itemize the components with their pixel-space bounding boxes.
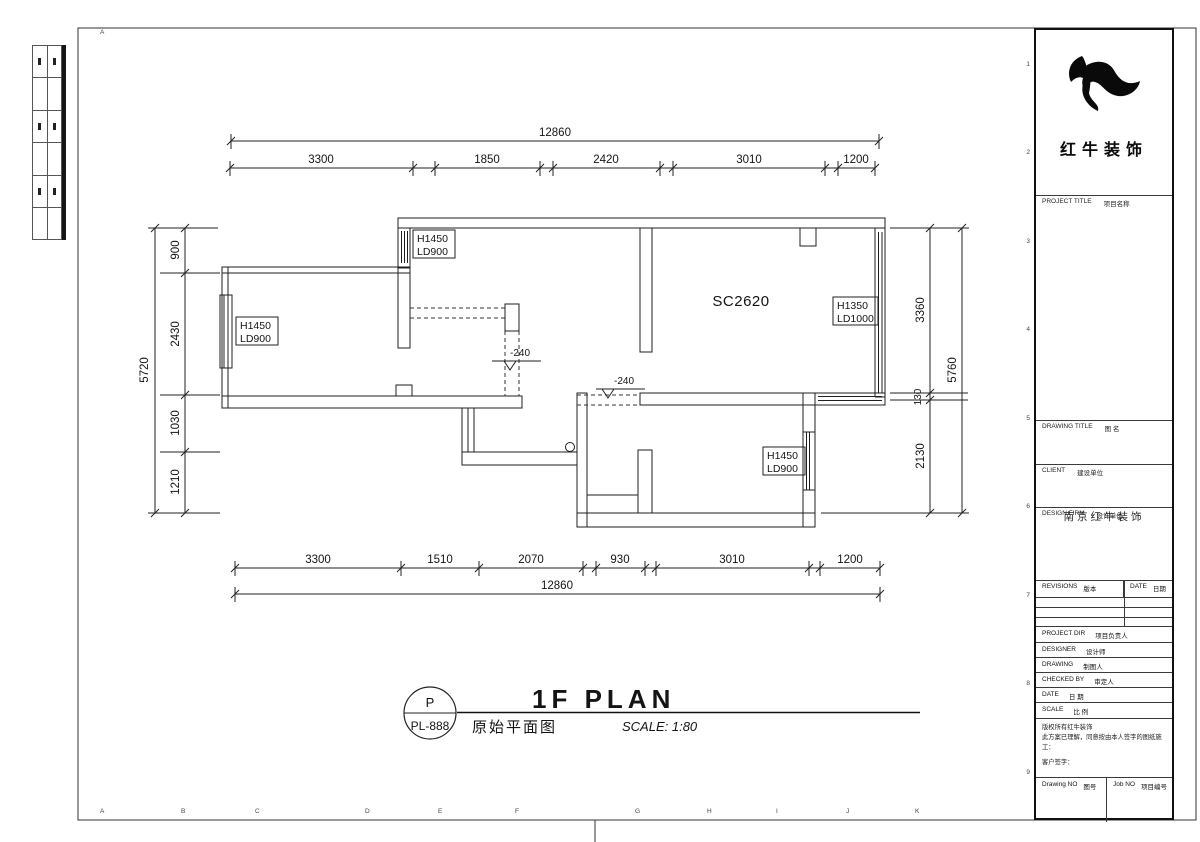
revisions-label-en: REVISIONS — [1042, 583, 1077, 597]
frame-ref-letter: K — [915, 808, 919, 815]
frame-ref-number: 8 — [1018, 680, 1030, 687]
frame-ref-number: 5 — [1018, 415, 1030, 422]
dim-label: 5760 — [947, 357, 959, 383]
sheet-number: PL-888 — [411, 719, 450, 733]
company-name: 红牛装饰 — [1036, 136, 1172, 160]
frame-ref-letter: H — [707, 808, 712, 815]
window-label: H1450 — [767, 450, 798, 462]
frame-ref-letter: J — [846, 808, 849, 815]
dim-label: 1210 — [170, 469, 182, 495]
dim-label: 900 — [170, 240, 182, 259]
drawing-no-label-en: Drawing NO — [1042, 781, 1077, 822]
client-cell: CLIENT 建设单位 — [1036, 464, 1172, 507]
dim-label: 3300 — [308, 154, 334, 166]
checked-by-label-en: CHECKED BY — [1042, 676, 1084, 687]
designer-label-en: DESIGNER — [1042, 646, 1076, 657]
window-label: LD900 — [767, 463, 798, 475]
client-signature-label: 客户签字： — [1042, 758, 1168, 768]
plan-title-en: 1F PLAN — [532, 684, 675, 714]
designer-row: DESIGNER 设计师 — [1036, 642, 1172, 657]
strip-cell — [33, 208, 61, 240]
client-label-cn: 建设单位 — [1077, 467, 1103, 507]
window-label: LD1000 — [837, 313, 874, 325]
date-label-cn: 日 期 — [1069, 691, 1084, 702]
revisions-label-cn: 版本 — [1083, 583, 1096, 597]
dim-label: 3300 — [305, 554, 331, 566]
scale-label-en: SCALE — [1042, 706, 1063, 718]
drawing-sheet: -240 -240 12860 3300 1850 2420 3010 1 — [0, 0, 1200, 842]
window-label: H1450 — [417, 233, 448, 245]
designer-label-cn: 设计师 — [1086, 646, 1106, 657]
dim-label: 12860 — [541, 580, 573, 592]
title-block: 红牛装饰 PROJECT TITLE 项目名称 DRAWING TITLE 图 … — [1034, 28, 1174, 820]
strip-cell — [33, 46, 61, 78]
sheet-code-letter: P — [426, 695, 435, 710]
dim-label: 930 — [610, 554, 629, 566]
frame-ref-letter: A — [100, 808, 104, 815]
frame-ref-number: 1 — [1018, 61, 1030, 68]
strip-cell — [33, 143, 61, 175]
drawing-label-en: DRAWING — [1042, 661, 1073, 672]
frame-ref-number: 2 — [1018, 149, 1030, 156]
scale-note: SCALE: 1:80 — [622, 719, 698, 734]
frame-ref-letter: E — [438, 808, 442, 815]
frame-ref-number: 7 — [1018, 592, 1030, 599]
plan-title-cn: 原始平面图 — [472, 719, 557, 736]
dim-label: 1030 — [170, 410, 182, 436]
date-col-label-en: DATE — [1130, 583, 1147, 597]
dim-label: 12860 — [539, 127, 571, 139]
binding-strip — [32, 45, 62, 240]
drawing-title-label-cn: 图 名 — [1105, 423, 1120, 464]
frame-ref-letter: B — [181, 808, 185, 815]
job-no-label-cn: 项目编号 — [1141, 781, 1167, 822]
client-label-en: CLIENT — [1042, 467, 1065, 507]
job-no-label-en: Job NO — [1113, 781, 1135, 822]
binding-bar — [62, 45, 66, 240]
room-label: SC2620 — [712, 293, 769, 310]
level-marker-label: -240 — [510, 348, 530, 359]
frame-ref-number: 9 — [1018, 769, 1030, 776]
dim-label: 1200 — [837, 554, 863, 566]
dim-label: 2070 — [518, 554, 544, 566]
dim-label: 130 — [913, 388, 924, 405]
dim-label: 2130 — [915, 443, 927, 469]
window-label: H1450 — [240, 320, 271, 332]
copyright-line: 版权所有红牛装饰 — [1042, 723, 1168, 733]
project-title-label-en: PROJECT TITLE — [1042, 198, 1092, 420]
design-firm-value: 南京红牛装饰 — [1036, 509, 1172, 524]
project-title-label-cn: 项目名称 — [1104, 198, 1130, 420]
copyright-line: 此方案已理解，同意按由本人签字的图纸施工： — [1042, 733, 1168, 753]
frame-ref-number: 6 — [1018, 503, 1030, 510]
window-label: H1350 — [837, 300, 868, 312]
frame-ref-letter: D — [365, 808, 370, 815]
date-row: DATE 日 期 — [1036, 687, 1172, 702]
dim-label: 3010 — [719, 554, 745, 566]
dim-label: 3010 — [736, 154, 762, 166]
frame-ref-letter: G — [635, 808, 640, 815]
dim-label: 1200 — [843, 154, 869, 166]
frame-ref-number: 3 — [1018, 238, 1030, 245]
project-dir-label-en: PROJECT DIR — [1042, 630, 1085, 641]
floor-plan-walls — [220, 218, 885, 527]
frame-ref-letter: C — [255, 808, 260, 815]
dim-label: 3360 — [915, 297, 927, 323]
beam-column — [505, 304, 519, 331]
window-label: LD900 — [240, 333, 271, 345]
date-label-en: DATE — [1042, 691, 1059, 702]
copyright-note: 版权所有红牛装饰 此方案已理解，同意按由本人签字的图纸施工： 客户签字： — [1036, 718, 1172, 777]
dim-label: 2420 — [593, 154, 619, 166]
dim-label: 1510 — [427, 554, 453, 566]
window-label: LD900 — [417, 246, 448, 258]
date-col-label-cn: 日期 — [1153, 583, 1166, 597]
dim-label: 1850 — [474, 154, 500, 166]
window-label-texts: H1450 LD900 H1450 LD900 H1350 LD1000 H14… — [240, 233, 874, 475]
frame-ref-letter: F — [515, 808, 519, 815]
project-dir-label-cn: 项目负责人 — [1095, 630, 1128, 641]
drawing-title-cell: DRAWING TITLE 图 名 — [1036, 420, 1172, 464]
checked-by-row: CHECKED BY 审定人 — [1036, 672, 1172, 687]
company-logo — [1058, 42, 1150, 134]
dimension-lines — [148, 134, 969, 602]
scale-label-cn: 比 例 — [1073, 706, 1088, 718]
checked-by-label-cn: 审定人 — [1094, 676, 1114, 687]
drawing-row: DRAWING 制图人 — [1036, 657, 1172, 672]
project-title-cell: PROJECT TITLE 项目名称 — [1036, 195, 1172, 420]
project-dir-row: PROJECT DIR 项目负责人 — [1036, 626, 1172, 641]
bull-logo-icon — [1058, 42, 1150, 134]
dimension-labels: 12860 3300 1850 2420 3010 1200 3300 1510… — [139, 127, 959, 592]
column-symbol — [566, 443, 575, 452]
frame-ref-letter: A — [100, 29, 104, 36]
strip-cell — [33, 78, 61, 110]
frame-ref-letter: I — [776, 808, 778, 815]
drawing-label-cn: 制图人 — [1083, 661, 1103, 672]
drawing-title-group: P PL-888 1F PLAN 原始平面图 SCALE: 1:80 — [404, 684, 920, 739]
level-marker-label: -240 — [614, 376, 634, 387]
dim-label: 2430 — [170, 321, 182, 347]
strip-cell — [33, 176, 61, 208]
drawing-no-label-cn: 图号 — [1083, 781, 1096, 822]
revisions-table: REVISIONS 版本 DATE 日期 — [1036, 580, 1172, 626]
scale-row: SCALE 比 例 — [1036, 702, 1172, 718]
drawing-title-label-en: DRAWING TITLE — [1042, 423, 1093, 464]
frame-ref-number: 4 — [1018, 326, 1030, 333]
dim-label: 5720 — [139, 357, 151, 383]
strip-cell — [33, 111, 61, 143]
drawing-no-row: Drawing NO 图号 Job NO 项目编号 — [1036, 777, 1172, 822]
